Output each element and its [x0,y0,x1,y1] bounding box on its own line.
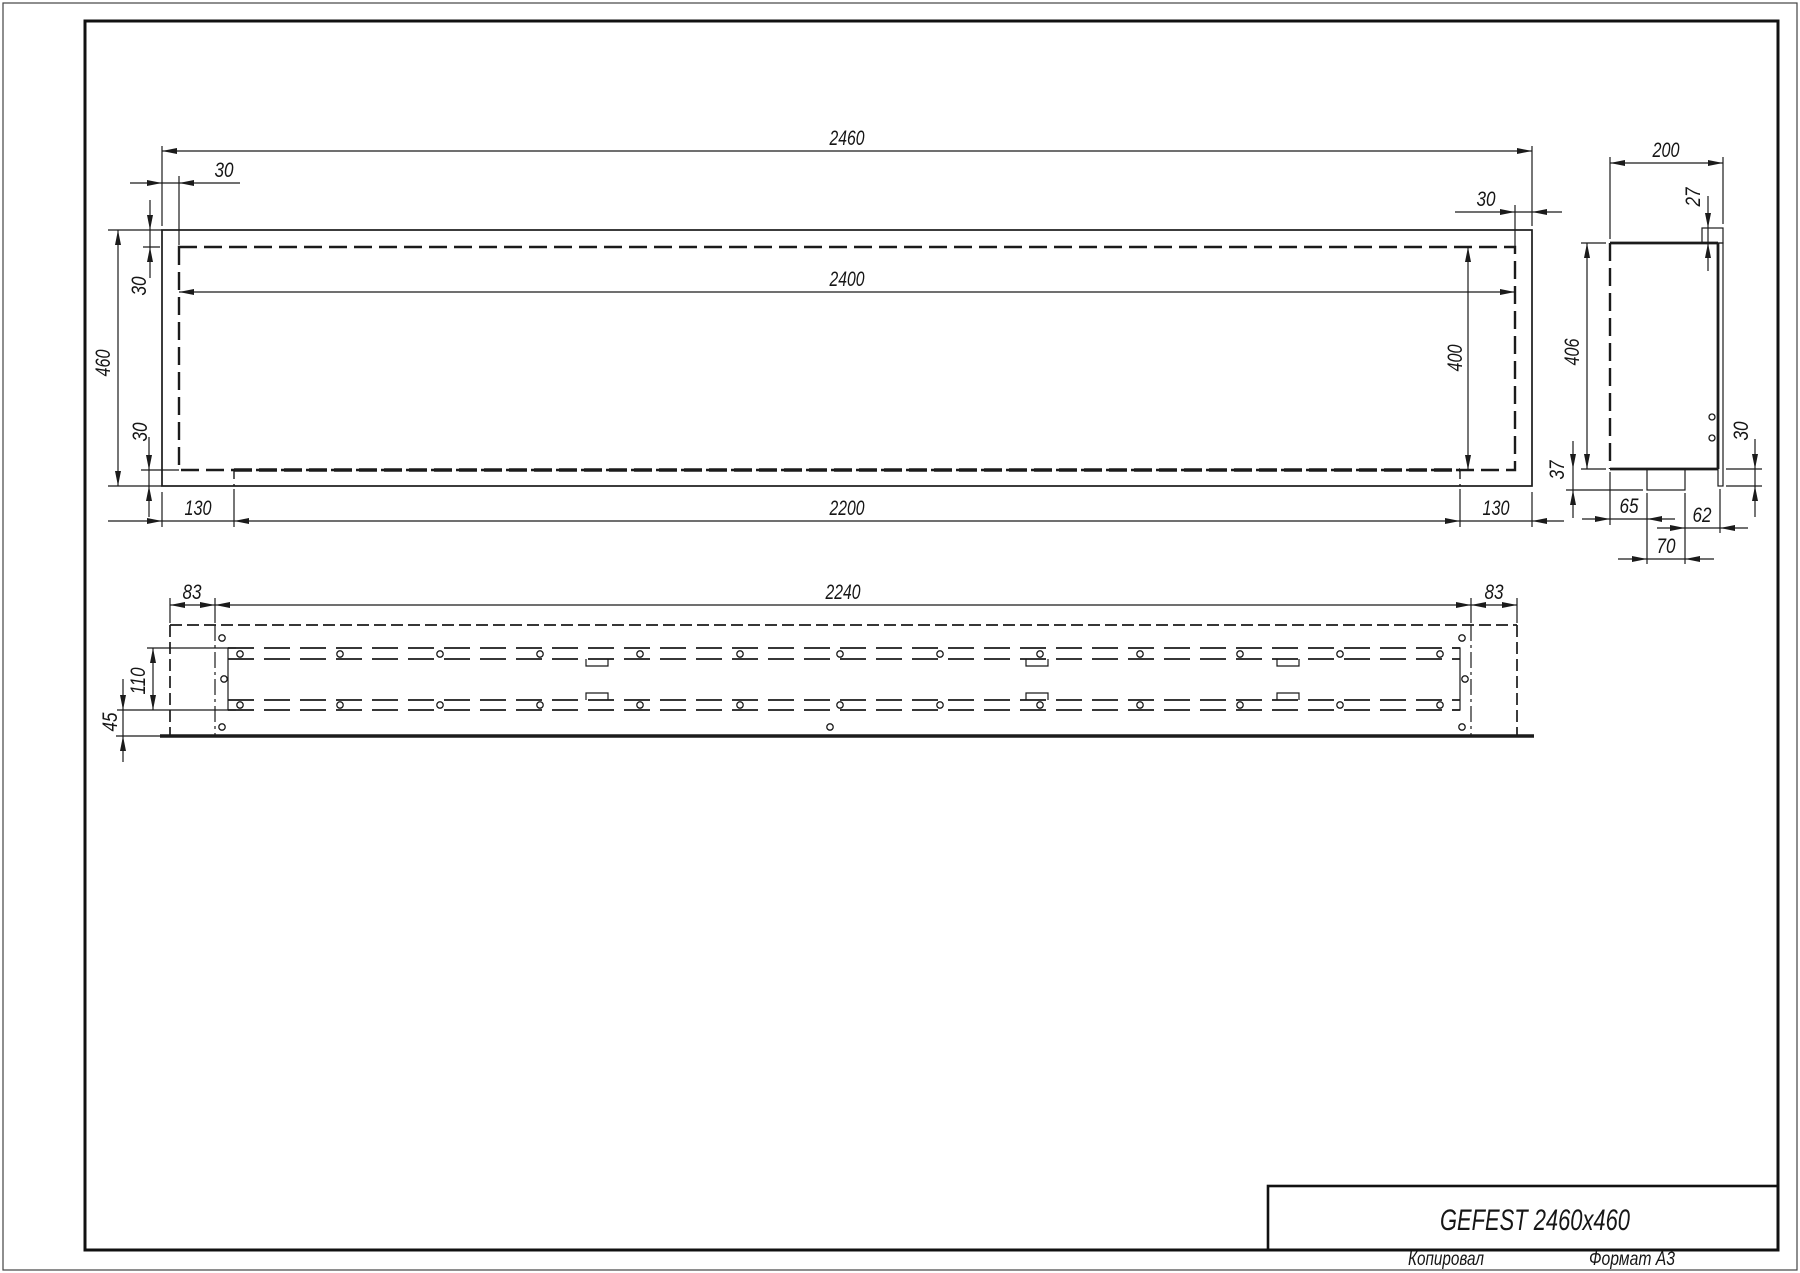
dim-label-margin-left: 30 [215,159,234,182]
dim-label-opening-height: 400 [1444,344,1467,371]
title-block: GEFEST 2460x460 Копировал Формат А3 [1268,1186,1778,1270]
dim-label-margin-top: 30 [128,276,151,295]
bottom-burner-slot [228,648,1460,710]
dim-front-margin-top: 30 [128,200,160,296]
dim-label-flange-lip: 27 [1682,186,1705,207]
bottom-view: 83 2240 83 110 45 [99,581,1534,762]
dim-label-tray-inset-right: 130 [1483,497,1510,520]
dim-front-margin-right: 30 [1455,188,1562,247]
model-title: GEFEST 2460x460 [1440,1204,1630,1237]
dim-front-opening-height: 400 [1444,247,1468,470]
dim-front-opening-width: 2400 [179,268,1515,292]
dim-label-tray-width: 70 [1657,535,1676,558]
side-view: 200 27 406 37 [1546,139,1762,564]
dim-side-flange-lip: 27 [1682,186,1711,271]
slot-notch [586,693,608,700]
bottom-mounting-holes [219,635,1468,730]
slot-notch [586,659,608,666]
drawing-frame [85,21,1778,1250]
dim-label-tray-length: 2200 [829,497,865,520]
dim-label-overall-height: 460 [92,349,115,376]
side-tray-channel [1647,469,1685,490]
dim-label-seg-left: 65 [1620,495,1639,518]
dim-label-tray-drop: 37 [1546,459,1569,479]
front-view: 2460 2400 460 30 30 [92,127,1564,527]
slot-notch [1026,659,1048,666]
copied-by-label: Копировал [1408,1249,1484,1270]
dim-label-overall-width: 2460 [829,127,865,150]
dim-label-front-offset: 45 [99,712,122,731]
side-hole-lower [1709,435,1715,441]
page-border [3,3,1797,1270]
dim-label-liner-inset-left: 83 [183,581,202,604]
dim-label-opening-width: 2400 [829,268,865,291]
dim-label-margin-right: 30 [1477,188,1496,211]
side-flange-lip [1702,228,1723,243]
dim-label-seg-right: 62 [1693,504,1712,527]
dim-label-depth: 200 [1652,139,1680,162]
dim-label-liner-inset-right: 83 [1485,581,1504,604]
dim-side-body-height: 406 [1561,243,1606,469]
dim-label-bottom-margin: 30 [1730,421,1753,440]
drawing-canvas: 2460 2400 460 30 30 [0,0,1800,1273]
sheet-frame [3,3,1797,1270]
dim-bottom-length-row: 83 2240 83 [170,581,1517,623]
format-label: Формат А3 [1589,1249,1675,1270]
dim-front-overall-width: 2460 [162,127,1532,226]
drawing-sheet: 2460 2400 460 30 30 [0,0,1800,1273]
dim-label-slot-width: 110 [127,667,150,694]
dim-front-overall-height: 460 [92,230,162,486]
slot-notch [1026,693,1048,700]
dim-bottom-slot-width: 110 [117,648,228,710]
dim-label-liner-length: 2240 [825,581,861,604]
slot-notch [1277,659,1299,666]
dim-label-body-height: 406 [1561,338,1584,365]
dim-label-tray-inset-left: 130 [185,497,212,520]
dim-front-margin-bottom: 30 [129,422,179,517]
dim-front-tray-row: 130 2200 130 [108,489,1564,527]
dim-side-bottom-margin: 30 [1726,421,1762,517]
side-hole-upper [1709,414,1715,420]
dim-label-margin-bottom: 30 [129,422,152,441]
dim-front-margin-left: 30 [130,159,240,245]
slot-notch [1277,693,1299,700]
dim-side-depth: 200 [1610,139,1723,239]
